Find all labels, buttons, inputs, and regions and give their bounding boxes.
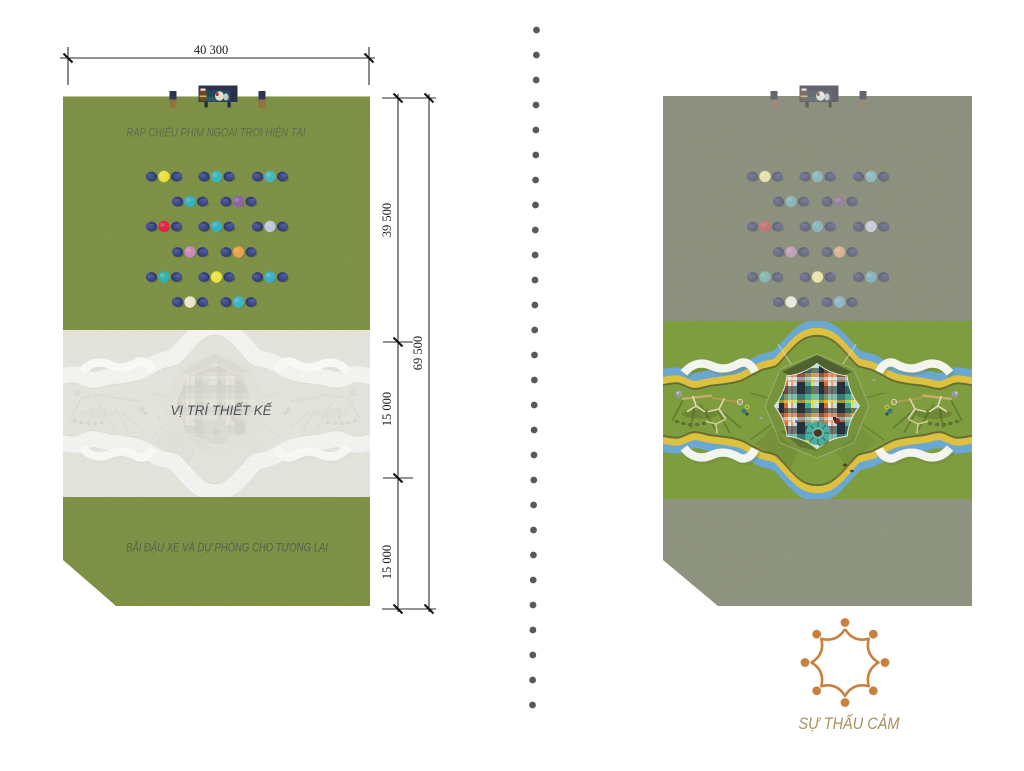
svg-text:SỰ THẤU CẢM: SỰ THẤU CẢM: [799, 714, 900, 733]
svg-text:RẠP CHIẾU PHIM NGOÀI TRỜI HIỆN: RẠP CHIẾU PHIM NGOÀI TRỜI HIỆN TẠI: [127, 125, 307, 140]
svg-text:15 000: 15 000: [380, 392, 394, 426]
svg-text:VỊ TRÍ THIẾT KẾ: VỊ TRÍ THIẾT KẾ: [171, 401, 274, 418]
svg-text:BÃI ĐẬU XE VÀ DỰ PHÒNG CHO TƯƠ: BÃI ĐẬU XE VÀ DỰ PHÒNG CHO TƯƠNG LAI: [126, 540, 329, 555]
svg-text:15 000: 15 000: [380, 545, 394, 579]
svg-text:39 500: 39 500: [380, 203, 394, 237]
svg-text:40 300: 40 300: [194, 43, 228, 57]
svg-text:69 500: 69 500: [411, 336, 425, 370]
